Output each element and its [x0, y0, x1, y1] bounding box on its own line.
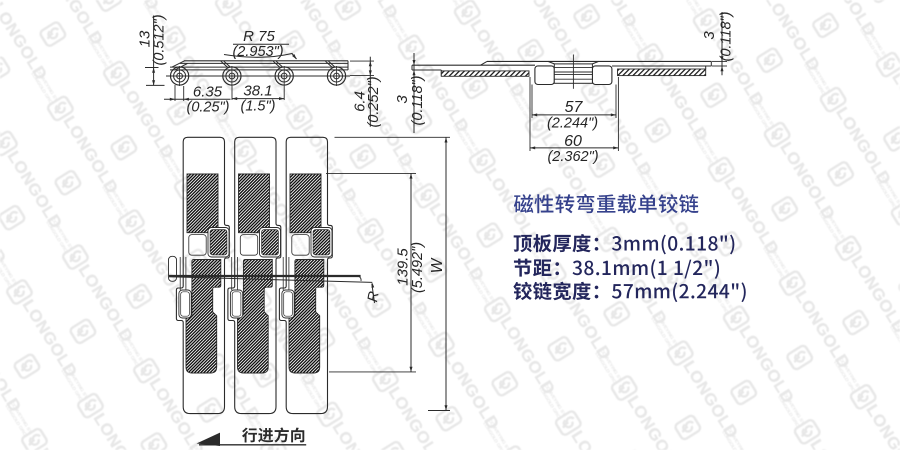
svg-text:3: 3	[394, 95, 411, 104]
svg-text:(5.492"): (5.492")	[410, 242, 426, 293]
svg-text:(2.362"): (2.362")	[547, 149, 598, 165]
svg-text:6.35: 6.35	[193, 84, 223, 101]
svg-text:R 75: R 75	[243, 28, 275, 45]
svg-text:(1.5"): (1.5")	[241, 99, 276, 115]
svg-text:(0.118"): (0.118")	[718, 11, 734, 61]
svg-text:(2.244"): (2.244")	[547, 116, 598, 132]
svg-text:60: 60	[564, 133, 582, 150]
svg-text:38.1: 38.1	[243, 83, 272, 100]
svg-text:(0.512"): (0.512")	[152, 14, 168, 65]
svg-text:57: 57	[565, 99, 584, 116]
svg-text:3: 3	[701, 31, 718, 40]
svg-text:W: W	[429, 257, 446, 273]
svg-text:(0.25"): (0.25")	[186, 100, 229, 116]
svg-text:(0.118"): (0.118")	[410, 75, 426, 125]
svg-text:(0.252"): (0.252")	[366, 76, 382, 127]
